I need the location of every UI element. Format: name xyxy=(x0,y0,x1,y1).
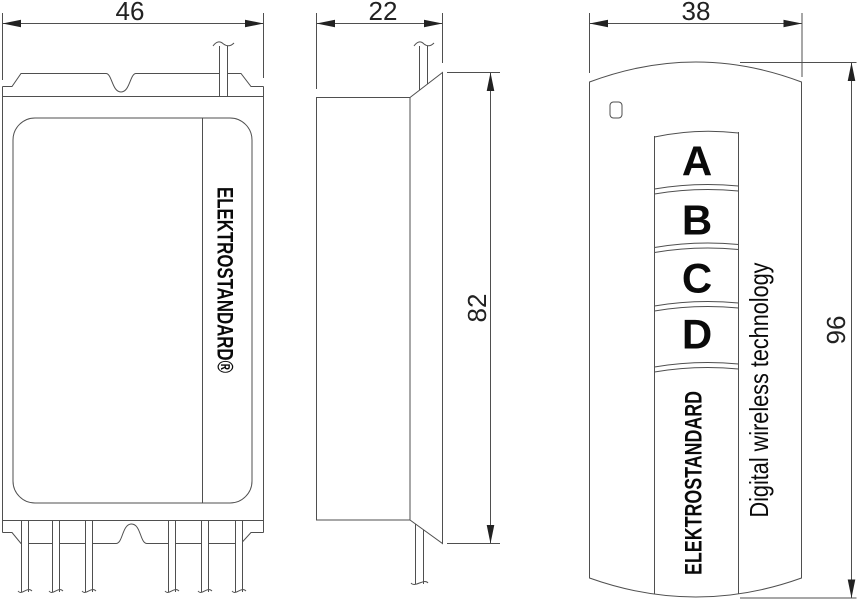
button-b: B xyxy=(682,197,712,244)
led-indicator xyxy=(610,102,622,118)
receiver-side-view: 22 82 xyxy=(317,0,501,584)
dimension-width-38: 38 xyxy=(590,0,803,77)
side-lid-flap xyxy=(410,73,443,544)
arrowhead-down-icon xyxy=(848,580,856,599)
button-d: D xyxy=(682,311,712,358)
pin xyxy=(82,521,96,592)
arrowhead-left-icon xyxy=(3,20,22,28)
dimension-label-46: 46 xyxy=(116,0,145,26)
antenna-wire xyxy=(414,42,434,90)
connector-pins xyxy=(18,521,246,592)
dimension-height-82: 82 xyxy=(447,73,500,544)
pin xyxy=(18,521,32,592)
bottom-lead-wire xyxy=(411,524,428,584)
arrowhead-left-icon xyxy=(590,20,609,28)
dimension-label-82: 82 xyxy=(462,294,492,323)
button-a: A xyxy=(682,138,712,185)
pin xyxy=(49,521,63,592)
antenna-wire xyxy=(213,42,234,96)
dimension-label-38: 38 xyxy=(682,0,711,26)
dimension-label-96: 96 xyxy=(821,316,851,345)
receiver-bottom-cap xyxy=(3,524,264,544)
receiver-brand-label: ELEKTROSTANDARD® xyxy=(213,187,238,373)
remote-tagline-label: Digital wireless technology xyxy=(744,263,774,518)
arrowhead-right-icon xyxy=(784,20,803,28)
dimension-width-22: 22 xyxy=(317,0,443,89)
technical-drawing: 46 ELEKTROSTANDARD® xyxy=(0,0,858,600)
arrowhead-up-icon xyxy=(848,63,856,82)
arrowhead-left-icon xyxy=(317,20,336,28)
wire-break-icon xyxy=(414,42,434,46)
button-c: C xyxy=(682,255,712,302)
pin xyxy=(198,521,212,592)
button-column: A B C D ELEKTROSTANDARD xyxy=(655,131,739,594)
pin xyxy=(232,521,246,592)
arrowhead-up-icon xyxy=(487,73,495,92)
dimension-label-22: 22 xyxy=(369,0,398,26)
arrowhead-right-icon xyxy=(245,20,264,28)
receiver-front-view: 46 ELEKTROSTANDARD® xyxy=(3,0,264,592)
remote-front-view: 38 A B C D ELEKTROSTANDARD Digital wirel… xyxy=(590,0,857,598)
side-body xyxy=(317,98,411,521)
pin xyxy=(165,521,179,592)
arrowhead-right-icon xyxy=(424,20,443,28)
wire-break-icon xyxy=(213,42,234,46)
drawing-canvas: 46 ELEKTROSTANDARD® xyxy=(0,0,858,600)
wire-break-icon xyxy=(411,582,428,585)
arrowhead-down-icon xyxy=(487,525,495,544)
remote-brand-label: ELEKTROSTANDARD xyxy=(681,391,708,575)
